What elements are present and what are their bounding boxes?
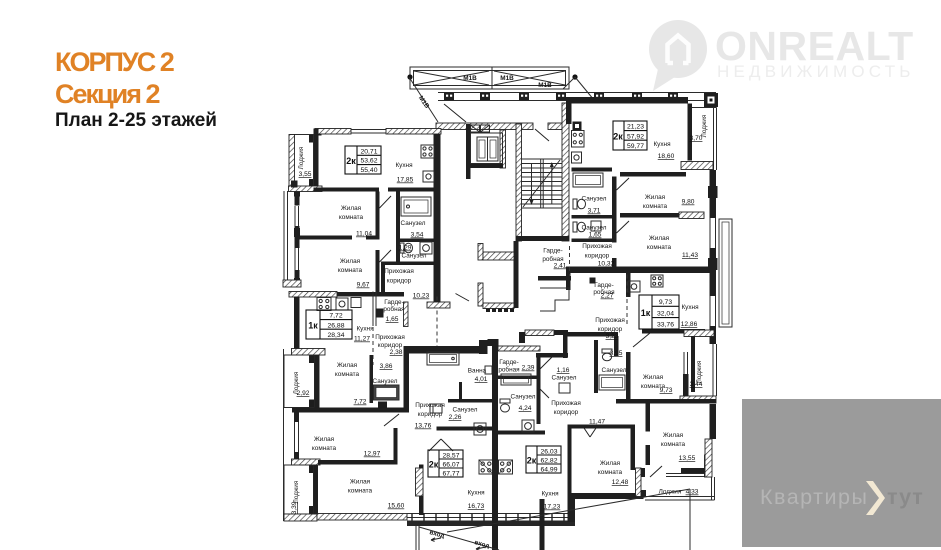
svg-text:3,70: 3,70 <box>690 135 703 142</box>
svg-text:Прихожая: Прихожая <box>551 400 581 407</box>
svg-text:2,92: 2,92 <box>297 390 310 397</box>
svg-text:Санузел: Санузел <box>552 375 577 382</box>
svg-text:12,86: 12,86 <box>681 321 698 328</box>
svg-text:Гарде-: Гарде- <box>543 248 562 255</box>
svg-text:Санузел: Санузел <box>401 220 426 227</box>
svg-text:Кухня: Кухня <box>653 141 671 148</box>
svg-text:Санузел: Санузел <box>582 225 607 232</box>
svg-text:Жилая: Жилая <box>645 194 666 201</box>
svg-text:3,44: 3,44 <box>690 381 703 388</box>
svg-text:Гарде-: Гарде- <box>499 359 518 366</box>
svg-text:М1В: М1В <box>463 75 477 82</box>
svg-text:Санузел: Санузел <box>602 367 627 374</box>
svg-text:робная: робная <box>383 305 405 313</box>
svg-text:64,99: 64,99 <box>540 466 557 473</box>
svg-text:М1В: М1В <box>538 82 552 89</box>
svg-text:комната: комната <box>338 267 363 274</box>
svg-text:2к: 2к <box>527 456 537 466</box>
svg-text:Санузел: Санузел <box>402 253 427 260</box>
svg-text:3,55: 3,55 <box>299 171 312 178</box>
svg-text:комната: комната <box>348 488 373 495</box>
svg-text:Лоджия: Лоджия <box>293 480 300 503</box>
svg-text:Жилая: Жилая <box>649 235 670 242</box>
svg-text:33,76: 33,76 <box>657 322 674 329</box>
svg-text:28,57: 28,57 <box>442 452 459 459</box>
svg-text:Прихожая: Прихожая <box>595 317 625 324</box>
svg-text:Прихожая: Прихожая <box>582 243 612 250</box>
svg-text:1к: 1к <box>308 321 318 331</box>
svg-text:Кухня: Кухня <box>395 162 413 169</box>
svg-text:26,03: 26,03 <box>540 448 557 455</box>
svg-text:2к: 2к <box>346 156 356 166</box>
svg-text:32,04: 32,04 <box>657 310 674 317</box>
svg-text:21,23: 21,23 <box>627 124 644 131</box>
svg-text:18,60: 18,60 <box>658 153 675 160</box>
svg-text:коридор: коридор <box>598 326 623 333</box>
svg-text:12,97: 12,97 <box>364 451 381 458</box>
svg-text:9,73: 9,73 <box>660 387 673 394</box>
svg-text:11,27: 11,27 <box>354 336 370 343</box>
svg-text:комната: комната <box>312 445 337 452</box>
svg-text:9,67: 9,67 <box>357 282 370 289</box>
svg-text:Санузел: Санузел <box>453 407 478 414</box>
svg-text:Жилая: Жилая <box>643 374 664 381</box>
svg-text:3,86: 3,86 <box>380 363 393 370</box>
svg-text:10,32: 10,32 <box>598 261 615 268</box>
svg-text:11,43: 11,43 <box>682 252 698 259</box>
svg-text:Жилая: Жилая <box>600 460 621 467</box>
svg-text:комната: комната <box>335 371 360 378</box>
svg-text:Гарде-: Гарде- <box>384 299 403 306</box>
svg-text:1,65: 1,65 <box>386 316 399 323</box>
svg-text:59,77: 59,77 <box>627 143 644 150</box>
svg-text:10,23: 10,23 <box>413 293 430 300</box>
svg-text:9,73: 9,73 <box>659 299 672 306</box>
svg-text:53,62: 53,62 <box>360 158 377 165</box>
svg-text:2,38: 2,38 <box>390 349 403 356</box>
svg-text:2к: 2к <box>613 132 623 142</box>
svg-text:Кухня: Кухня <box>681 304 699 311</box>
svg-text:Жилая: Жилая <box>314 436 335 443</box>
svg-text:Прихожая: Прихожая <box>375 334 405 341</box>
svg-text:вход: вход <box>429 529 446 540</box>
svg-text:коридор: коридор <box>378 342 403 349</box>
svg-text:Кухня: Кухня <box>541 491 559 498</box>
svg-text:Лоджия: Лоджия <box>701 114 708 137</box>
svg-text:коридор: коридор <box>554 409 579 416</box>
svg-text:3,39: 3,39 <box>291 501 298 514</box>
svg-text:Жилая: Жилая <box>341 205 362 212</box>
svg-text:Кухня: Кухня <box>467 490 485 497</box>
svg-text:2,41: 2,41 <box>554 263 567 270</box>
svg-text:Жилая: Жилая <box>663 432 684 439</box>
svg-text:20,71: 20,71 <box>360 148 377 155</box>
svg-text:3,54: 3,54 <box>411 232 424 239</box>
svg-text:66,07: 66,07 <box>442 461 459 468</box>
svg-text:М1В: М1В <box>500 75 514 82</box>
svg-text:3,23: 3,23 <box>606 333 619 340</box>
svg-text:17,23: 17,23 <box>544 504 561 511</box>
svg-text:Санузел: Санузел <box>511 394 536 401</box>
svg-text:коридор: коридор <box>387 278 412 285</box>
svg-text:17,85: 17,85 <box>397 177 414 184</box>
svg-text:62,82: 62,82 <box>540 457 557 464</box>
svg-text:16,73: 16,73 <box>468 503 485 510</box>
svg-text:Жилая: Жилая <box>340 258 361 265</box>
svg-text:2к: 2к <box>429 460 439 470</box>
svg-text:Жилая: Жилая <box>337 362 358 369</box>
svg-text:1,65: 1,65 <box>589 232 602 239</box>
svg-text:Санузел: Санузел <box>582 196 607 203</box>
svg-text:1,29: 1,29 <box>399 245 412 252</box>
svg-text:3,71: 3,71 <box>588 208 601 215</box>
svg-text:Жилая: Жилая <box>350 479 371 486</box>
svg-text:2,26: 2,26 <box>449 414 462 421</box>
svg-text:11,47: 11,47 <box>589 419 605 426</box>
svg-text:13,55: 13,55 <box>679 455 696 462</box>
svg-text:комната: комната <box>647 244 672 251</box>
svg-text:7,72: 7,72 <box>329 313 342 320</box>
svg-text:коридор: коридор <box>585 253 610 260</box>
svg-text:комната: комната <box>339 214 364 221</box>
svg-text:4,24: 4,24 <box>519 405 532 412</box>
svg-text:2,27: 2,27 <box>601 293 614 300</box>
svg-text:1к: 1к <box>641 308 651 318</box>
svg-text:1,16: 1,16 <box>557 367 570 374</box>
svg-text:7,72: 7,72 <box>354 399 367 406</box>
svg-text:комната: комната <box>643 203 668 210</box>
svg-text:15,60: 15,60 <box>388 503 405 510</box>
svg-text:13,76: 13,76 <box>415 423 432 430</box>
svg-text:Лоджия: Лоджия <box>696 360 703 383</box>
svg-text:4,01: 4,01 <box>475 376 488 383</box>
svg-text:26,88: 26,88 <box>327 322 344 329</box>
svg-text:комната: комната <box>661 441 686 448</box>
svg-text:Санузел: Санузел <box>373 378 398 385</box>
svg-text:робная: робная <box>498 366 520 374</box>
svg-text:57,92: 57,92 <box>627 133 644 140</box>
svg-text:28,34: 28,34 <box>327 332 344 339</box>
svg-text:67,77: 67,77 <box>442 470 459 477</box>
svg-text:Ванна: Ванна <box>468 368 487 375</box>
svg-text:Прихожая: Прихожая <box>384 268 414 275</box>
svg-text:2,39: 2,39 <box>522 365 535 372</box>
svg-text:Лоджия: Лоджия <box>298 146 305 169</box>
svg-text:Гарде-: Гарде- <box>594 282 613 289</box>
svg-text:Кухня: Кухня <box>356 326 374 333</box>
svg-text:12,48: 12,48 <box>612 479 629 486</box>
svg-text:9,80: 9,80 <box>682 199 695 206</box>
svg-text:55,40: 55,40 <box>360 167 377 174</box>
svg-text:комната: комната <box>598 469 623 476</box>
